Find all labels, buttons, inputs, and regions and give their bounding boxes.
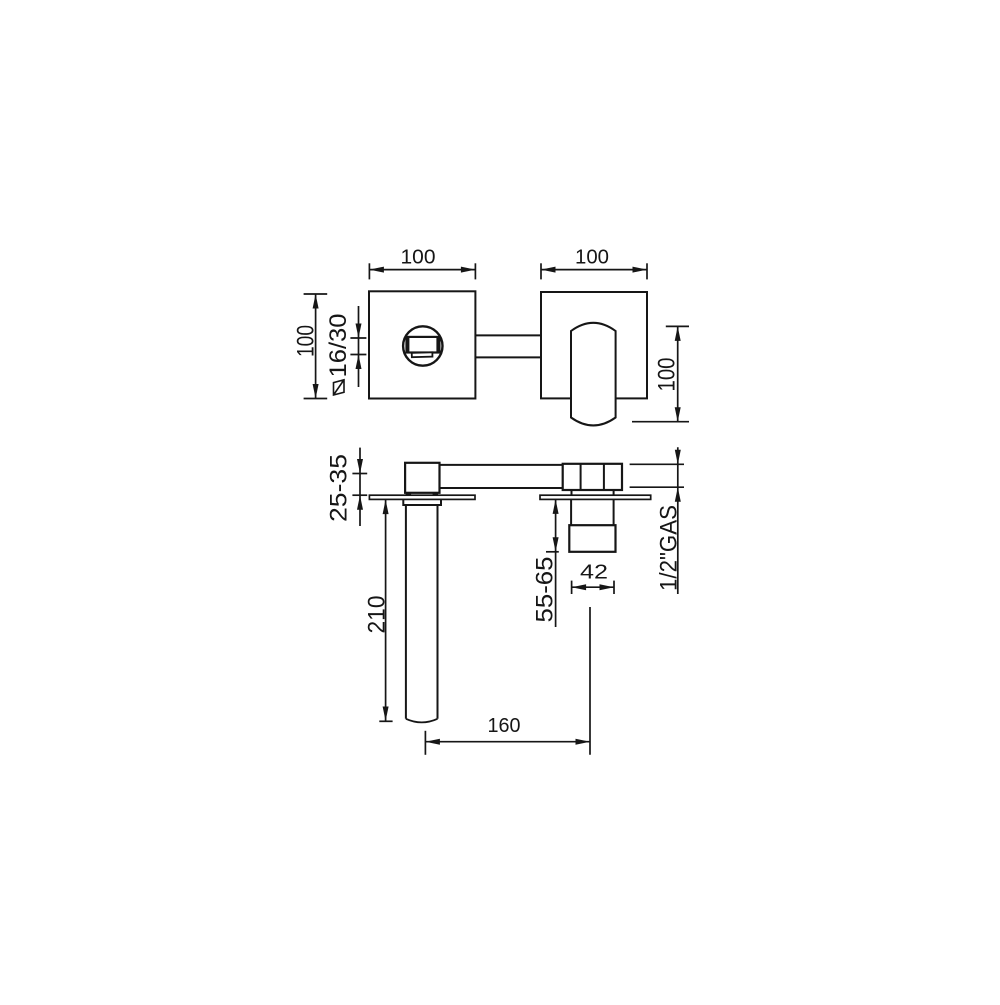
svg-text:100: 100 xyxy=(401,247,436,269)
svg-text:160: 160 xyxy=(488,715,521,737)
svg-text:100: 100 xyxy=(293,325,320,357)
svg-text:16/30: 16/30 xyxy=(325,314,352,378)
svg-text:210: 210 xyxy=(364,596,391,634)
svg-text:25-35: 25-35 xyxy=(326,454,353,522)
svg-text:100: 100 xyxy=(575,247,609,269)
svg-text:100: 100 xyxy=(654,358,681,392)
svg-text:1/2"GAS: 1/2"GAS xyxy=(656,505,683,591)
svg-text:42: 42 xyxy=(580,562,608,584)
svg-text:55-65: 55-65 xyxy=(532,557,559,623)
